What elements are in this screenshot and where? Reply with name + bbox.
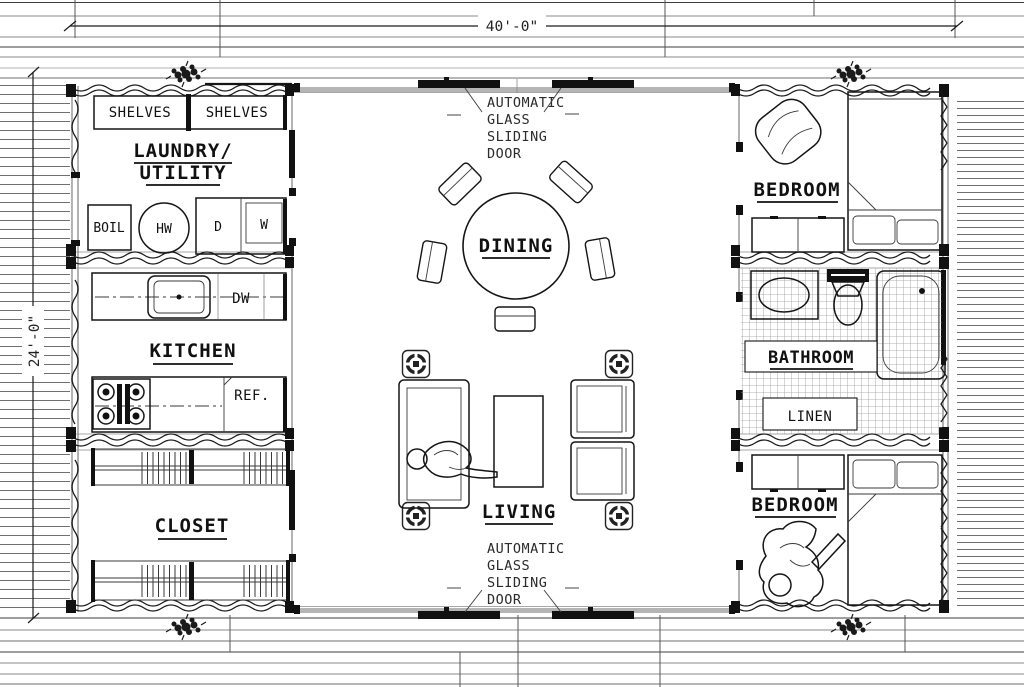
door-label-bottom-4: DOOR (487, 592, 522, 608)
dishwasher-label: DW (232, 291, 250, 307)
dryer-label: D (214, 220, 222, 235)
ceiling-light-icon (403, 503, 430, 530)
boiler-label: BOIL (93, 221, 124, 236)
dimension-depth-label: 24'-0" (27, 315, 43, 367)
ceiling-light-icon (403, 351, 430, 378)
room-label-living: LIVING (482, 501, 557, 523)
door-label-top-3: SLIDING (487, 129, 547, 145)
room-label-bedroom-top: BEDROOM (753, 179, 840, 201)
room-label-laundry: LAUNDRY/ (133, 140, 233, 162)
door-label-bottom-2: GLASS (487, 558, 530, 574)
door-label-top-4: DOOR (487, 146, 522, 162)
floor-plan-drawing: 40'-0" 24'-0" (0, 0, 1024, 687)
deck-right-strip (950, 95, 1024, 612)
refrigerator-label: REF. (234, 388, 270, 404)
dimension-width-label: 40'-0" (486, 19, 538, 35)
ceiling-light-icon (606, 503, 633, 530)
room-label-closet: CLOSET (155, 515, 230, 537)
door-label-top-1: AUTOMATIC (487, 95, 565, 111)
shelves-left-label: SHELVES (109, 105, 172, 121)
water-heater-label: HW (156, 222, 172, 237)
room-bathroom: BATHROOM LINEN (741, 268, 945, 434)
room-label-bathroom: BATHROOM (768, 348, 854, 368)
room-label-bedroom-bottom: BEDROOM (751, 494, 838, 516)
room-label-linen: LINEN (788, 409, 833, 425)
door-label-bottom-1: AUTOMATIC (487, 541, 565, 557)
room-label-kitchen: KITCHEN (149, 340, 236, 362)
washer-label: W (260, 218, 268, 233)
room-label-utility: UTILITY (139, 162, 226, 184)
floor-plan-page: 40'-0" 24'-0" (0, 0, 1024, 687)
door-label-top-2: GLASS (487, 112, 530, 128)
dining-chair (495, 307, 535, 331)
shelves-right-label: SHELVES (206, 105, 269, 121)
ceiling-light-icon (606, 351, 633, 378)
room-label-dining: DINING (479, 235, 554, 257)
door-label-bottom-3: SLIDING (487, 575, 547, 591)
